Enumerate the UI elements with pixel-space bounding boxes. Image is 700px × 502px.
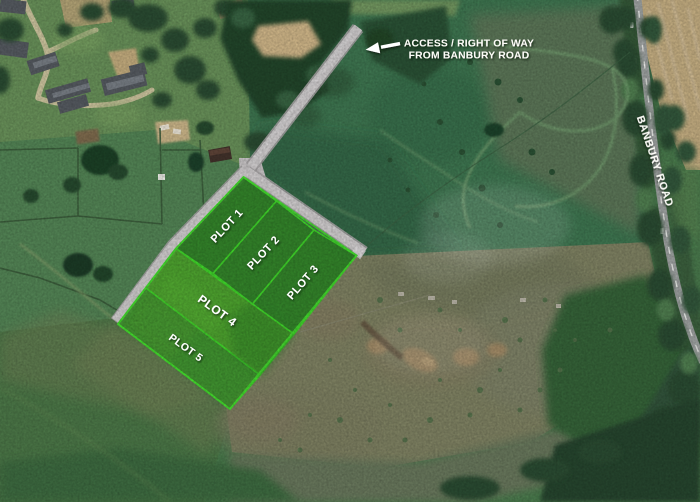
svg-text:ACCESS / RIGHT OF WAY: ACCESS / RIGHT OF WAY <box>404 39 534 50</box>
svg-text:FROM BANBURY ROAD: FROM BANBURY ROAD <box>409 51 530 62</box>
